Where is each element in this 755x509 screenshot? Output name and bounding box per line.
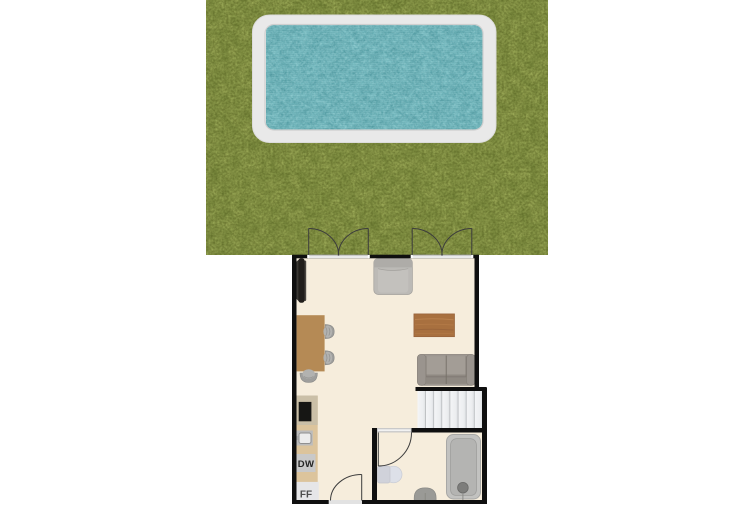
- svg-text:FF: FF: [300, 490, 312, 501]
- svg-text:DW: DW: [298, 459, 314, 470]
